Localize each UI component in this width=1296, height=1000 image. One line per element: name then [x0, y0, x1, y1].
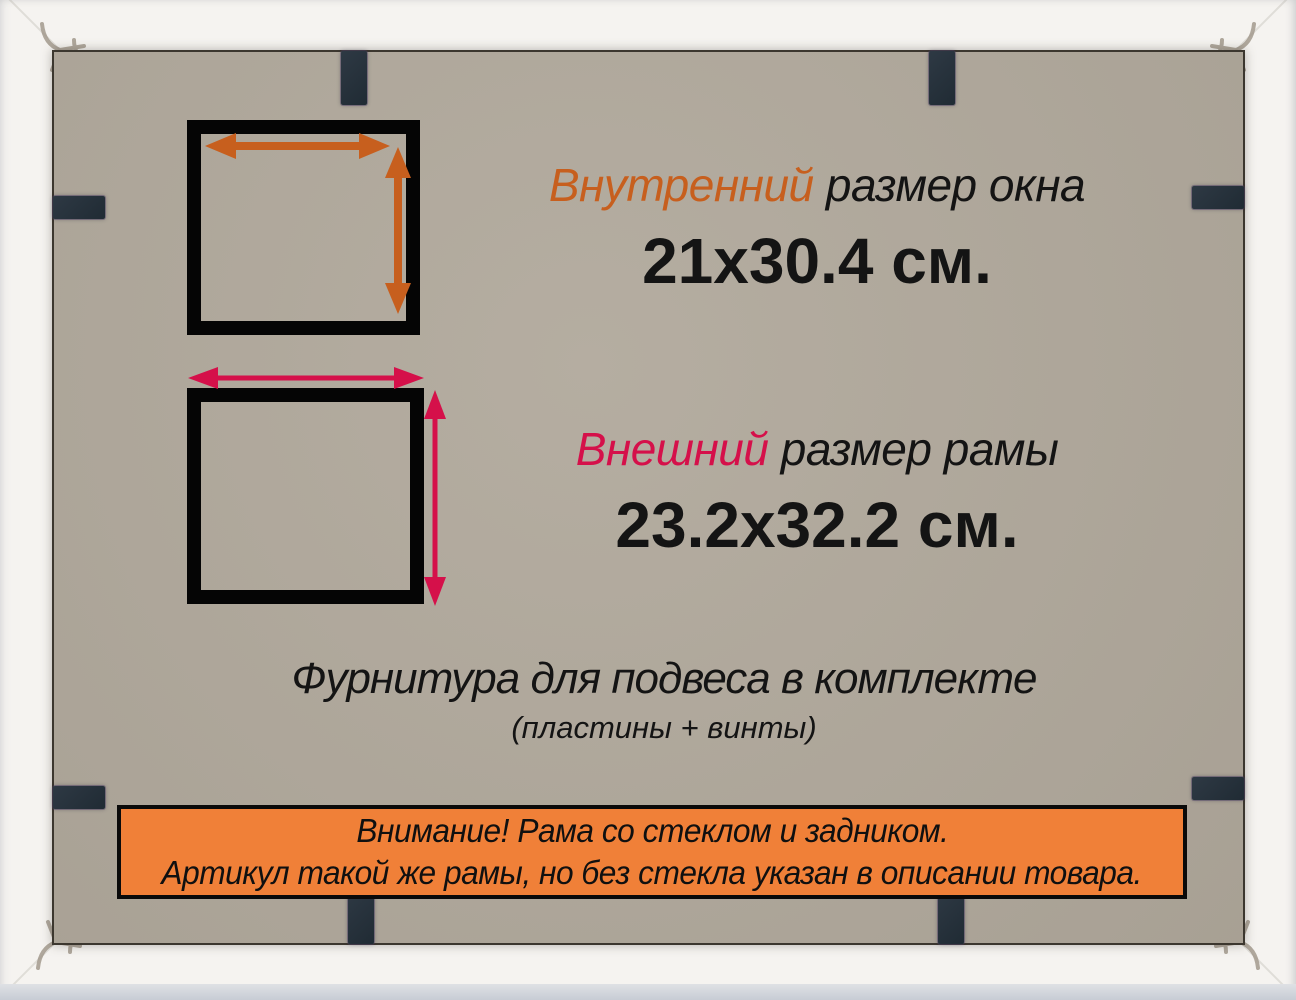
inner-size-label-rest: размер окна: [826, 159, 1085, 211]
warning-banner: Внимание! Рама со стеклом и задником. Ар…: [117, 805, 1187, 899]
outer-size-square: [187, 388, 424, 604]
hardware-note: Фурнитура для подвеса в комплекте (пласт…: [74, 654, 1254, 746]
hardware-note-line1: Фурнитура для подвеса в комплекте: [74, 654, 1254, 704]
warning-banner-line2: Артикул такой же рамы, но без стекла ука…: [162, 852, 1142, 894]
outer-size-label-accent: Внешний: [576, 423, 769, 475]
inner-size-square: [187, 120, 420, 335]
outer-size-block: Внешний размер рамы 23.2x32.2 см.: [422, 422, 1212, 562]
hardware-note-line2: (пластины + винты): [74, 710, 1254, 746]
backing-board: Внутренний размер окна 21x30.4 см. Внешн…: [52, 50, 1245, 945]
retaining-clip: [929, 51, 955, 105]
outer-size-value: 23.2x32.2 см.: [422, 488, 1212, 562]
frame-product-infographic: Внутренний размер окна 21x30.4 см. Внешн…: [0, 0, 1296, 1000]
inner-size-block: Внутренний размер окна 21x30.4 см.: [422, 158, 1212, 298]
retaining-clip: [53, 786, 105, 809]
retaining-clip: [341, 51, 367, 105]
inner-size-label-accent: Внутренний: [549, 159, 814, 211]
inner-size-label: Внутренний размер окна: [422, 158, 1212, 212]
retaining-clip: [1192, 777, 1244, 800]
outer-size-label-rest: размер рамы: [781, 423, 1059, 475]
retaining-clip: [53, 196, 105, 219]
outer-size-label: Внешний размер рамы: [422, 422, 1212, 476]
outer-width-arrow: [188, 367, 424, 389]
inner-size-value: 21x30.4 см.: [422, 224, 1212, 298]
warning-banner-line1: Внимание! Рама со стеклом и задником.: [356, 810, 948, 852]
photo-bottom-edge: [0, 984, 1296, 1000]
